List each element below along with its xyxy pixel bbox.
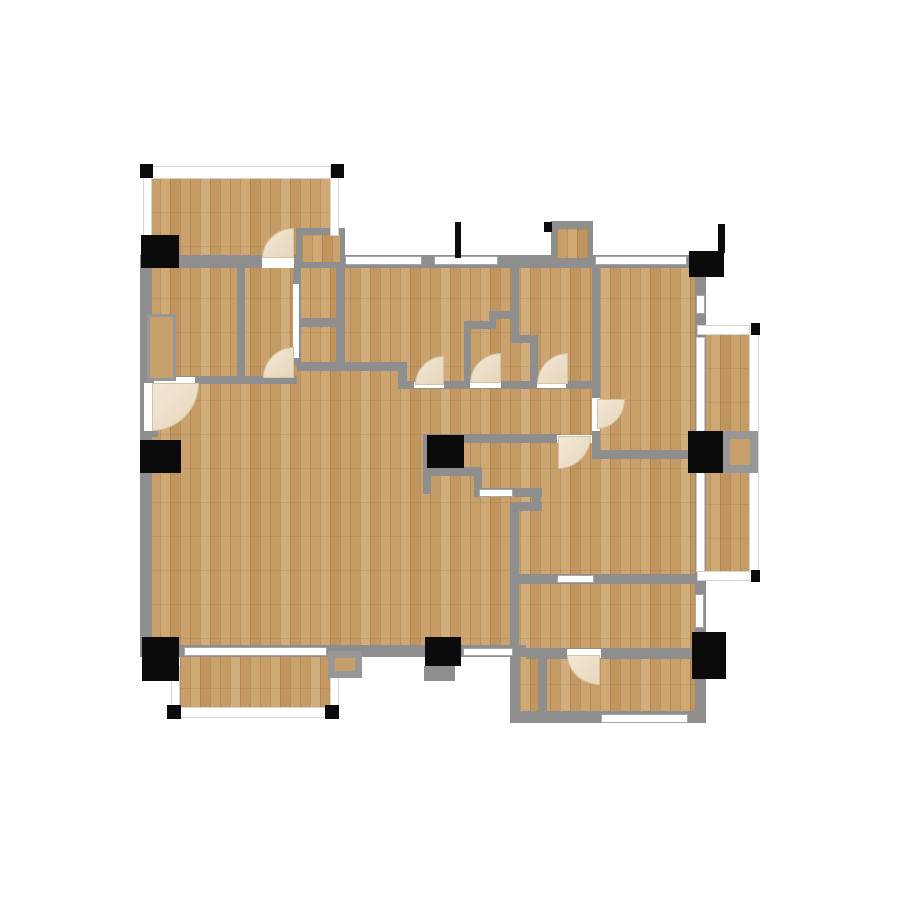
marker-top-right-box	[689, 251, 724, 277]
window-bottom-2	[463, 648, 513, 656]
window-top-2	[434, 256, 498, 265]
frame-box-right-balcony	[722, 431, 758, 473]
wall-living-right-v	[510, 506, 519, 654]
glass-door-right-2	[696, 472, 705, 572]
wall-hall-right-h	[592, 450, 690, 459]
marker-corner-balcony-tl-1	[140, 164, 153, 178]
marker-corner-balcony-tl-2	[331, 164, 344, 178]
marker-top-right-flag	[718, 224, 725, 253]
opening-entry-door	[144, 383, 152, 431]
frame-niche-left	[147, 314, 176, 381]
marker-chimney-tick	[544, 222, 552, 232]
window-divider-h	[557, 575, 594, 583]
rail-balcony-tl-top	[143, 166, 339, 179]
marker-top-flag	[455, 222, 461, 258]
wall-mid-bottom	[526, 648, 702, 659]
window-kitchen	[479, 489, 513, 497]
floor-plan	[0, 0, 900, 900]
marker-corner-balcony-r-1	[751, 323, 760, 335]
wall-step-v1	[511, 264, 519, 343]
rail-balcony-bl-bottom	[171, 707, 339, 718]
wall-apron-bottom	[424, 666, 455, 681]
marker-left-top	[141, 235, 179, 268]
marker-left-bottom	[142, 637, 179, 681]
window-top-1	[345, 256, 422, 265]
marker-corner-balcony-bl-2	[325, 705, 339, 719]
floor-balcony-bottom-left	[180, 654, 332, 712]
wall-step-h3	[511, 335, 538, 343]
wall-step-v3	[464, 321, 471, 383]
marker-right-mid	[688, 431, 723, 473]
window-right-1	[696, 295, 705, 314]
wall-hall-top-mid	[297, 362, 407, 371]
frame-box-bottom-left	[328, 651, 362, 678]
marker-bottom-center	[425, 637, 461, 666]
wall-wing-left-inner	[538, 658, 547, 722]
marker-left-mid	[140, 440, 181, 473]
wall-closet-h1	[300, 318, 344, 327]
marker-corner-balcony-bl-1	[167, 705, 181, 719]
wall-rooms-divider-h	[517, 574, 703, 584]
floor-chimney	[557, 229, 588, 258]
wall-bedroom-divider-v	[592, 263, 600, 398]
wall-wing-left-outer	[510, 650, 520, 723]
marker-corner-balcony-r-2	[751, 570, 760, 582]
window-bottom-1	[184, 647, 327, 656]
glass-door-right-1	[696, 337, 705, 433]
rail-balcony-r-bottom	[697, 571, 759, 581]
wall-closet-v1	[237, 262, 245, 383]
marker-right-bottom	[692, 632, 726, 679]
floor-porch-nook	[302, 235, 340, 262]
window-wing-bottom	[601, 714, 688, 723]
window-top-3	[595, 256, 687, 265]
window-right-2	[695, 594, 704, 628]
marker-kitchen-appliance	[427, 435, 464, 468]
